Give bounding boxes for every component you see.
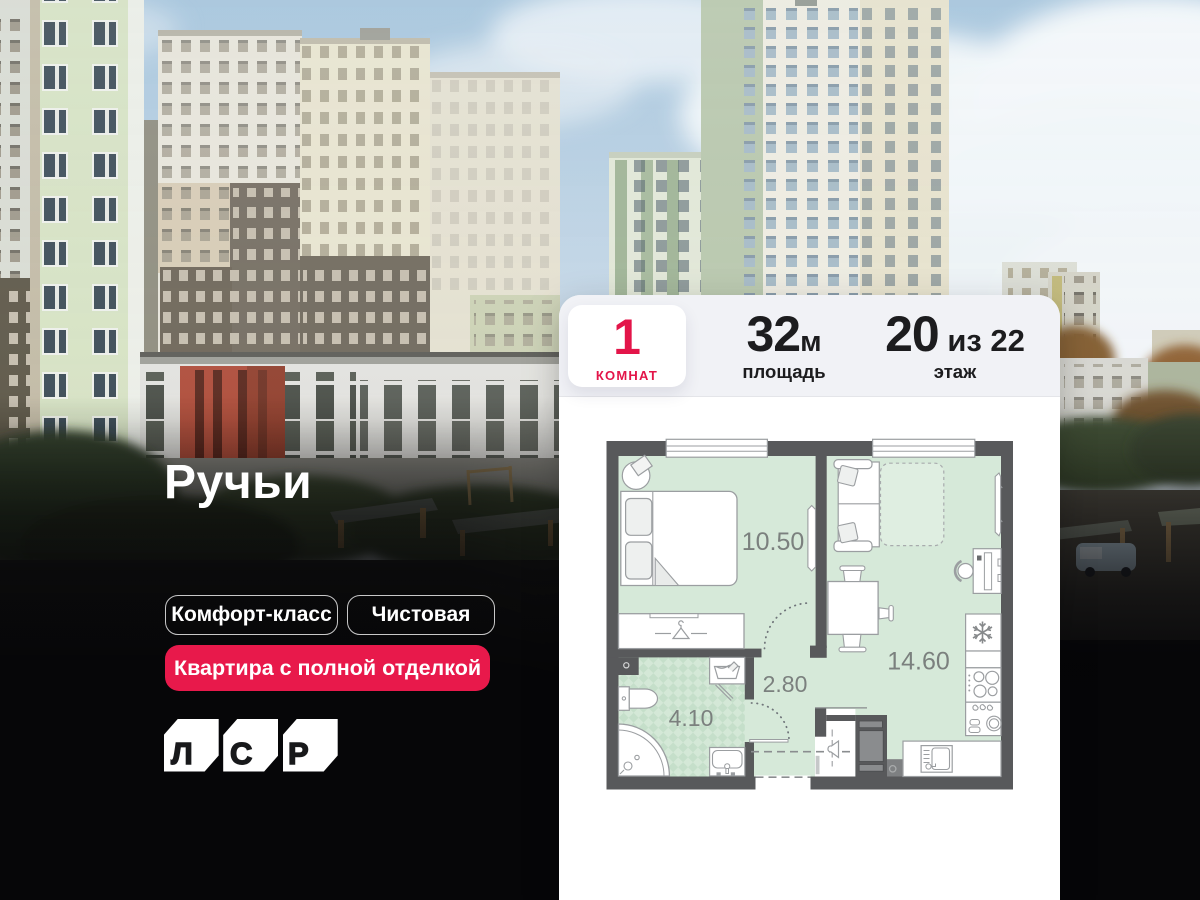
svg-text:2.80: 2.80 xyxy=(763,671,808,697)
svg-text:14.60: 14.60 xyxy=(887,648,950,676)
svg-text:10.50: 10.50 xyxy=(742,528,805,556)
svg-text:4.10: 4.10 xyxy=(669,705,714,731)
